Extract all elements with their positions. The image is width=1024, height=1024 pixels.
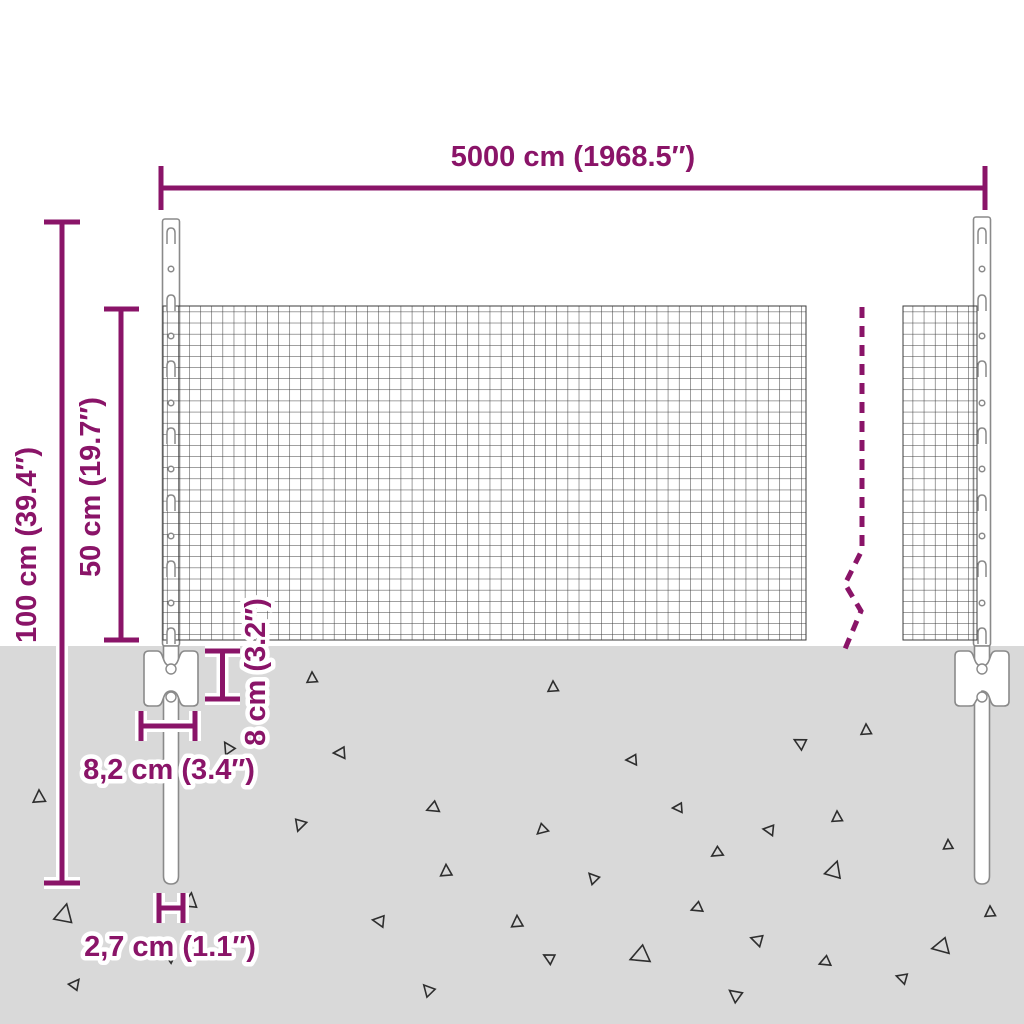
post-hook-slot [978,228,986,244]
post-hook-slot [167,628,175,644]
post-hole [979,400,985,406]
post-hole [168,333,174,339]
post-hook-slot [167,295,175,311]
post-height-label: 100 cm (39.4″) [11,447,43,643]
post-hole [168,266,174,272]
post-hook-slot [167,361,175,377]
product-diagram-page: 5000 cm (1968.5″) 100 cm (39.4″) 50 cm (… [0,0,1024,1024]
plate-hole [166,692,176,702]
dim-mesh-height: 50 cm (19.7″) [75,309,139,640]
post-diameter-label: 2,7 cm (1.1″) [84,931,256,963]
plate-hole [166,664,176,674]
post-hook-slot [167,228,175,244]
post-hole [979,466,985,472]
post-hook-slot [978,428,986,444]
dim-total-length: 5000 cm (1968.5″) [161,141,985,210]
post-hole [168,466,174,472]
anchor-plate-height-label: 8 cm (3.2″) [240,598,272,746]
post-hole [168,400,174,406]
post-hook-slot [978,295,986,311]
total-length-label: 5000 cm (1968.5″) [451,141,695,173]
post-hook-slot [978,628,986,644]
post-hole [979,333,985,339]
post-hook-slot [978,561,986,577]
wire-mesh-left-section [163,306,806,640]
anchor-plate-width-label: 8,2 cm (3.4″) [83,754,255,786]
post-hole [979,266,985,272]
post-hole [168,533,174,539]
post-hook-slot [167,495,175,511]
post-hook-slot [167,428,175,444]
wire-mesh-right-section [903,306,977,640]
post-hole [979,600,985,606]
plate-hole [977,692,987,702]
post-hook-slot [167,561,175,577]
post-hook-slot [978,495,986,511]
fence-dimension-diagram: 5000 cm (1968.5″) 100 cm (39.4″) 50 cm (… [0,0,1024,1024]
post-hook-slot [978,361,986,377]
mesh-height-label: 50 cm (19.7″) [75,397,107,577]
length-break-line [845,307,862,649]
plate-hole [977,664,987,674]
post-hole [168,600,174,606]
post-hole [979,533,985,539]
